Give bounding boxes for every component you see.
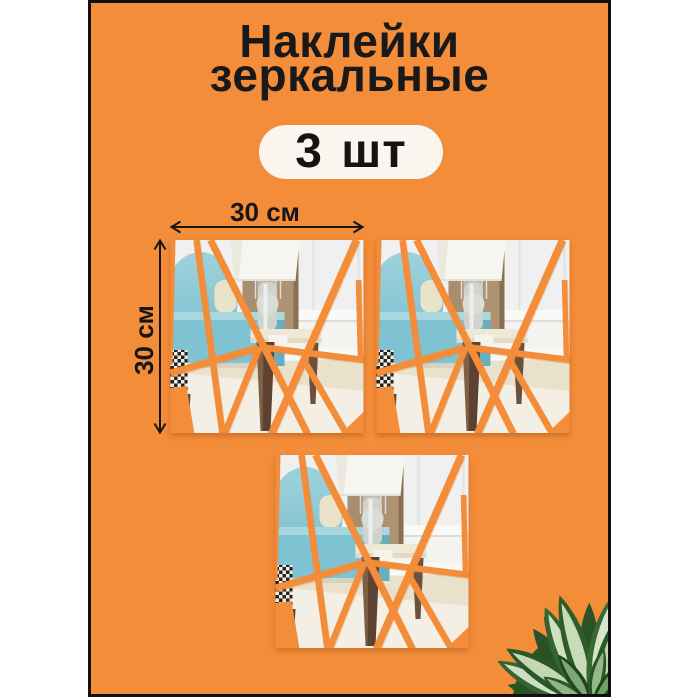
svg-text:30 см: 30 см: [230, 197, 300, 227]
svg-text:30 см: 30 см: [129, 305, 159, 375]
